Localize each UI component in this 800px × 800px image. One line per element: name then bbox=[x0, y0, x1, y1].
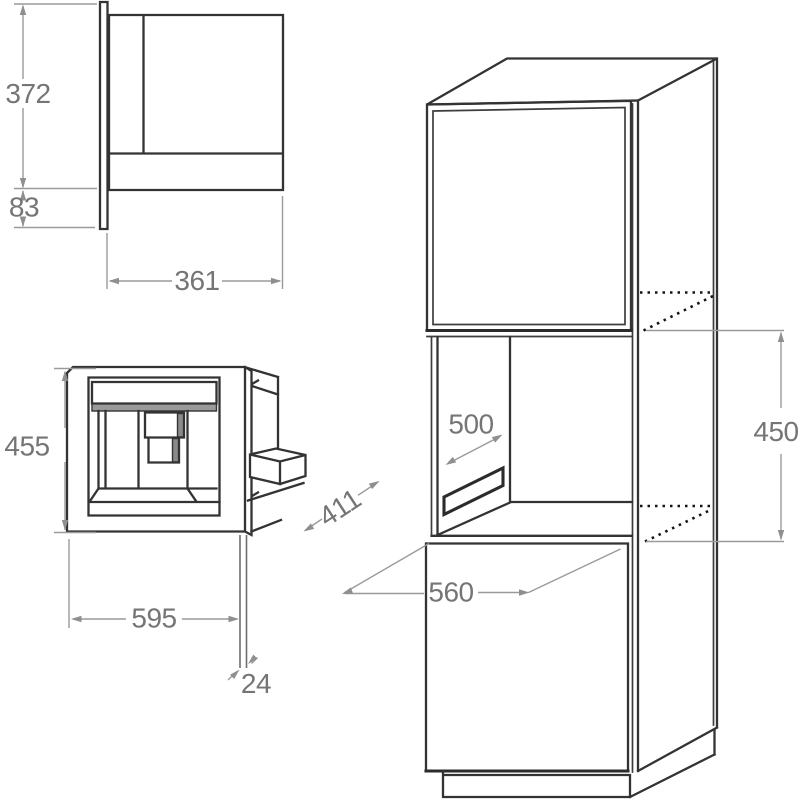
side-view-body bbox=[109, 15, 283, 190]
dim-label-455: 455 bbox=[4, 431, 49, 462]
cup-shelf bbox=[250, 449, 306, 485]
dim-361-arrow-left bbox=[109, 278, 120, 284]
diagram-canvas: 372 83 361 bbox=[0, 0, 800, 800]
niche-vent-slot bbox=[444, 468, 503, 515]
machine-front-panel bbox=[67, 367, 252, 535]
machine-display-panel bbox=[92, 382, 217, 404]
dim-560: 560 bbox=[342, 544, 621, 608]
dim-label-372: 372 bbox=[5, 78, 50, 109]
dim-label-500: 500 bbox=[448, 409, 493, 440]
dim-361-arrow-right bbox=[271, 278, 282, 284]
dim-455: 455 bbox=[4, 369, 96, 533]
side-view-figure: 372 83 361 bbox=[5, 2, 283, 296]
machine-interior-lines bbox=[89, 411, 220, 502]
dim-24: 24 bbox=[228, 655, 271, 700]
dim-450: 450 bbox=[646, 331, 799, 542]
dim-372-arrow-up bbox=[20, 5, 26, 16]
dim-455-lines bbox=[54, 369, 96, 533]
dim-label-24: 24 bbox=[241, 668, 271, 699]
dim-label-560: 560 bbox=[428, 577, 473, 608]
dim-411: 411 bbox=[304, 481, 380, 532]
dim-label-83: 83 bbox=[9, 192, 39, 223]
cabinet-right-edges bbox=[638, 59, 717, 772]
dim-560-lines bbox=[344, 544, 621, 594]
machine-inner-frame bbox=[89, 378, 220, 516]
machine-front-figure: 455 595 24 411 bbox=[4, 367, 379, 699]
cabinet-top-face bbox=[427, 59, 717, 105]
dim-label-595: 595 bbox=[131, 603, 176, 634]
dim-560-arrow-right bbox=[519, 589, 530, 595]
installation-diagram: 372 83 361 bbox=[0, 0, 800, 800]
dim-500: 500 bbox=[446, 409, 503, 466]
plinth bbox=[443, 730, 715, 797]
dim-595: 595 bbox=[69, 535, 247, 668]
dim-450-arrow-up bbox=[778, 332, 784, 343]
panel-projection-lines bbox=[240, 535, 247, 668]
dim-500-line bbox=[449, 437, 499, 463]
dim-595-arrow-right bbox=[229, 616, 240, 622]
dim-372: 372 bbox=[5, 4, 97, 189]
dim-372-arrow-down bbox=[20, 178, 26, 189]
dim-label-450: 450 bbox=[753, 416, 798, 447]
cabinet-figure: 500 560 450 bbox=[342, 59, 799, 798]
upper-door bbox=[427, 101, 631, 331]
dim-595-arrow-left bbox=[71, 616, 82, 622]
dim-411-arrow-upright bbox=[369, 481, 380, 489]
dim-83: 83 bbox=[9, 190, 95, 228]
upper-door-inner-line bbox=[433, 108, 625, 325]
side-view-front-panel bbox=[100, 2, 108, 229]
dim-450-arrow-down bbox=[778, 530, 784, 541]
dim-500-arrow-downleft bbox=[446, 457, 457, 465]
machine-lower-edges bbox=[248, 483, 304, 532]
dim-label-411: 411 bbox=[313, 483, 366, 532]
dim-label-361: 361 bbox=[174, 265, 219, 296]
dim-361: 361 bbox=[107, 196, 283, 296]
dim-24-arrow-upright bbox=[230, 670, 240, 680]
